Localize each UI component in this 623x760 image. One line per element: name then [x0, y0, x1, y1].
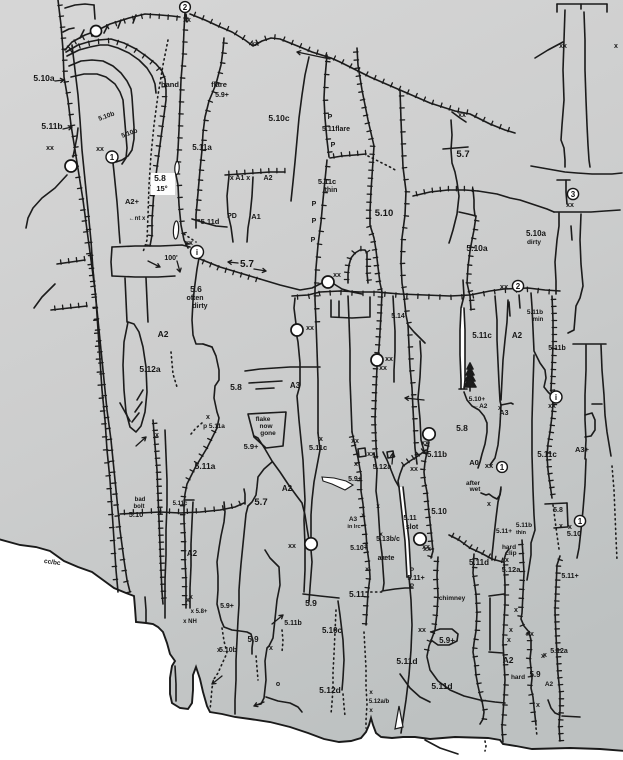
- svg-text:PD: PD: [227, 213, 237, 220]
- svg-text:flare: flare: [211, 80, 227, 89]
- svg-text:5.11: 5.11: [403, 515, 416, 522]
- svg-text:1: 1: [110, 153, 115, 162]
- svg-text:x: x: [376, 503, 380, 510]
- svg-text:5.6: 5.6: [190, 284, 202, 294]
- svg-text:hard: hard: [511, 674, 525, 681]
- svg-text:5.10a: 5.10a: [466, 243, 488, 253]
- svg-text:xx: xx: [251, 41, 259, 48]
- svg-text:P: P: [331, 142, 336, 149]
- svg-text:P: P: [311, 237, 316, 244]
- svg-text:x: x: [614, 43, 618, 50]
- svg-text:5.12a/b: 5.12a/b: [369, 699, 390, 705]
- svg-text:1: 1: [500, 463, 505, 472]
- svg-text:5.9: 5.9: [305, 598, 317, 608]
- svg-text:A0: A0: [469, 458, 479, 467]
- svg-text:5.10a: 5.10a: [33, 73, 55, 83]
- svg-text:5.7: 5.7: [240, 259, 254, 270]
- svg-text:P: P: [410, 568, 414, 574]
- svg-text:5.12a: 5.12a: [139, 364, 161, 374]
- svg-text:A3: A3: [500, 410, 509, 417]
- svg-text:x: x: [559, 523, 563, 530]
- svg-text:x: x: [354, 461, 358, 468]
- svg-text:x: x: [369, 707, 373, 714]
- svg-text:xx: xx: [288, 543, 296, 550]
- svg-text:x: x: [158, 509, 162, 516]
- svg-text:A2: A2: [264, 175, 273, 182]
- svg-text:5.11+: 5.11+: [407, 575, 424, 582]
- svg-text:A3+: A3+: [575, 445, 590, 454]
- svg-text:x: x: [319, 436, 323, 443]
- svg-text:x: x: [487, 501, 491, 508]
- svg-text:15°: 15°: [156, 184, 167, 193]
- svg-text:clip: clip: [505, 550, 516, 557]
- svg-text:5.11b: 5.11b: [548, 345, 566, 352]
- svg-text:x: x: [568, 524, 572, 531]
- svg-text:5.9: 5.9: [247, 635, 259, 644]
- svg-text:xx: xx: [458, 112, 466, 119]
- svg-text:5.10: 5.10: [129, 510, 144, 519]
- svg-text:thin: thin: [516, 530, 527, 536]
- svg-text:arete: arete: [378, 555, 395, 562]
- svg-text:5.10b: 5.10b: [219, 647, 237, 654]
- svg-text:5.9: 5.9: [529, 670, 541, 679]
- svg-text:P: P: [312, 201, 317, 208]
- svg-text:A2: A2: [282, 484, 293, 493]
- svg-text:A3: A3: [290, 381, 301, 390]
- svg-text:5.12d: 5.12d: [319, 685, 341, 695]
- svg-text:x: x: [543, 652, 547, 659]
- svg-text:x: x: [364, 541, 368, 548]
- svg-text:hand: hand: [161, 80, 179, 89]
- svg-text:5.12a: 5.12a: [502, 565, 522, 574]
- svg-text:5.11a: 5.11a: [192, 143, 212, 152]
- svg-text:5.9+: 5.9+: [348, 476, 362, 483]
- svg-text:5.11b: 5.11b: [427, 450, 447, 459]
- svg-text:x: x: [509, 627, 513, 634]
- svg-text:P: P: [328, 114, 333, 121]
- svg-text:5.12a: 5.12a: [550, 648, 568, 655]
- svg-text:xx: xx: [367, 451, 375, 458]
- svg-text:xx: xx: [96, 146, 104, 153]
- svg-text:gone: gone: [260, 430, 276, 437]
- svg-text:xx: xx: [500, 282, 509, 291]
- svg-text:5.9+: 5.9+: [215, 92, 229, 99]
- svg-text:A2+: A2+: [125, 197, 140, 206]
- svg-text:5.9+: 5.9+: [439, 636, 455, 645]
- svg-text:5.11c: 5.11c: [309, 443, 327, 452]
- svg-text:A3: A3: [349, 516, 358, 523]
- svg-text:5.11d: 5.11d: [431, 681, 452, 691]
- svg-text:x: x: [361, 512, 365, 519]
- svg-text:x: x: [505, 557, 509, 564]
- svg-text:5.10: 5.10: [375, 208, 394, 219]
- svg-text:5.11flare: 5.11flare: [322, 126, 350, 133]
- svg-text:5.7: 5.7: [254, 497, 267, 508]
- svg-text:xx: xx: [333, 272, 341, 279]
- svg-text:5.9+: 5.9+: [244, 442, 259, 451]
- svg-text:5.11d: 5.11d: [396, 656, 417, 666]
- svg-text:5.11b: 5.11b: [284, 620, 302, 627]
- svg-text:P: P: [312, 218, 317, 225]
- svg-text:5.8: 5.8: [456, 423, 468, 433]
- svg-text:5.11c: 5.11c: [173, 501, 188, 507]
- svg-text:A1: A1: [251, 212, 261, 221]
- svg-text:xx: xx: [423, 546, 431, 553]
- svg-text:5.14: 5.14: [391, 313, 405, 320]
- svg-text:5.8: 5.8: [154, 173, 166, 183]
- svg-text:A2: A2: [187, 549, 198, 558]
- svg-text:2: 2: [516, 282, 521, 291]
- svg-text:5.11b: 5.11b: [527, 309, 543, 316]
- svg-text:5.8: 5.8: [230, 382, 242, 392]
- svg-text:A2: A2: [503, 655, 514, 665]
- svg-text:x 5.8+: x 5.8+: [191, 609, 208, 615]
- svg-text:5.11+: 5.11+: [561, 573, 578, 580]
- svg-text:5.8: 5.8: [553, 507, 563, 514]
- svg-text:x: x: [189, 594, 193, 601]
- svg-text:x: x: [369, 689, 373, 696]
- svg-text:o: o: [276, 681, 280, 688]
- svg-text:x: x: [365, 566, 369, 573]
- svg-text:xx: xx: [385, 356, 393, 363]
- svg-text:now: now: [260, 423, 274, 430]
- svg-text:often: often: [186, 295, 203, 302]
- svg-text:5.11d: 5.11d: [201, 217, 220, 226]
- svg-text:xx: xx: [306, 325, 314, 332]
- svg-text:xx: xx: [559, 43, 567, 50]
- svg-text:←A2: ←A2: [473, 403, 488, 410]
- svg-text:dirty: dirty: [192, 303, 207, 310]
- svg-text:x: x: [206, 414, 210, 421]
- svg-text:5.10c: 5.10c: [268, 113, 290, 123]
- svg-text:←nt x: ←nt x: [129, 216, 146, 222]
- svg-text:i: i: [196, 248, 198, 257]
- svg-text:5.10c: 5.10c: [322, 626, 343, 635]
- svg-text:xx: xx: [548, 403, 556, 410]
- svg-text:xx: xx: [351, 438, 359, 445]
- svg-text:xx: xx: [418, 627, 426, 634]
- svg-text:x: x: [155, 432, 159, 439]
- svg-text:5.11c: 5.11c: [537, 450, 557, 459]
- svg-text:xx: xx: [46, 145, 54, 152]
- svg-text:x: x: [514, 607, 518, 614]
- svg-text:5.10: 5.10: [431, 507, 447, 516]
- svg-text:x: x: [217, 647, 221, 654]
- svg-text:2: 2: [183, 3, 188, 12]
- svg-text:x: x: [536, 702, 540, 709]
- svg-text:in lrc: in lrc: [347, 524, 360, 530]
- svg-text:dirty: dirty: [527, 239, 541, 246]
- svg-text:x: x: [381, 555, 385, 562]
- svg-text:bad: bad: [135, 497, 146, 503]
- svg-text:100': 100': [164, 255, 178, 262]
- svg-text:xx: xx: [410, 466, 418, 473]
- svg-text:5.10+: 5.10+: [469, 396, 486, 403]
- svg-text:xx: xx: [185, 240, 193, 247]
- svg-text:5.11b: 5.11b: [516, 522, 532, 529]
- svg-text:min: min: [533, 317, 544, 323]
- svg-text:i: i: [555, 393, 557, 402]
- svg-text:xx: xx: [566, 202, 574, 209]
- svg-text:chimney: chimney: [439, 595, 466, 602]
- svg-text:5.10a: 5.10a: [526, 229, 547, 238]
- svg-text:5.11a: 5.11a: [195, 461, 216, 471]
- svg-text:A2: A2: [512, 331, 523, 340]
- svg-text:x A1 x: x A1 x: [230, 175, 250, 182]
- svg-text:p 5.11a: p 5.11a: [203, 423, 225, 430]
- svg-text:5.11c: 5.11c: [472, 331, 492, 340]
- svg-text:5.11+: 5.11+: [496, 528, 512, 535]
- svg-text:5.9+: 5.9+: [220, 603, 234, 610]
- svg-text:flake: flake: [256, 416, 271, 423]
- svg-text:slot: slot: [406, 524, 419, 531]
- svg-text:wet: wet: [469, 486, 482, 493]
- svg-text:1: 1: [578, 517, 583, 526]
- svg-text:5.11: 5.11: [349, 589, 365, 599]
- svg-text:x: x: [507, 637, 511, 644]
- svg-text:x NH: x NH: [183, 619, 197, 625]
- svg-text:5.7: 5.7: [456, 149, 469, 160]
- svg-text:A2: A2: [545, 681, 554, 688]
- svg-text:A2: A2: [158, 329, 169, 339]
- svg-text:5.11c: 5.11c: [318, 177, 336, 186]
- svg-text:xx: xx: [485, 461, 494, 470]
- svg-text:xx: xx: [183, 17, 191, 24]
- svg-text:x: x: [269, 645, 273, 652]
- svg-text:5.11b: 5.11b: [41, 121, 62, 131]
- svg-text:xx: xx: [421, 440, 429, 447]
- svg-text:3: 3: [571, 190, 576, 199]
- svg-text:5.12a: 5.12a: [373, 462, 393, 471]
- svg-text:P: P: [410, 584, 414, 590]
- svg-text:5.11d: 5.11d: [469, 558, 489, 567]
- svg-text:x: x: [379, 531, 383, 538]
- svg-text:thin: thin: [325, 187, 338, 194]
- svg-text:xx: xx: [379, 365, 387, 372]
- svg-text:xx: xx: [526, 631, 534, 638]
